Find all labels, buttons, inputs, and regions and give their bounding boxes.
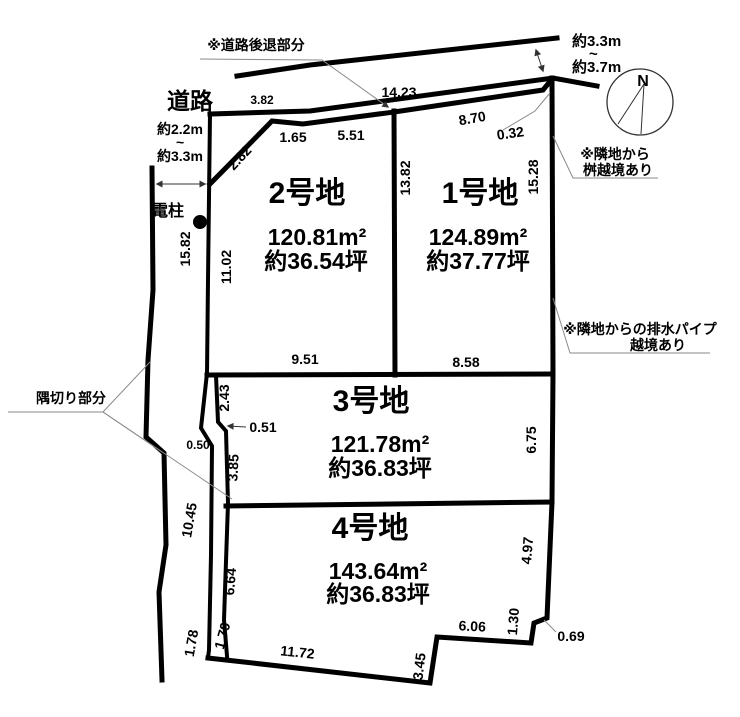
compass-north-label: N (637, 73, 649, 90)
dim-west-line-upper: 15.82 (177, 231, 193, 266)
plot2-name: 2号地 (269, 177, 346, 210)
dim-plot4-east: 4.97 (518, 536, 536, 565)
plot-1: 1号地 124.89m² 約37.77坪 (426, 177, 530, 274)
plot-layout-svg: N 電柱 ※道路後退部分 道路 約3.3m ~ 約3.7m 約2.2m ~ 約3… (0, 0, 740, 717)
drain-note-line1: ※隣地からの排水パイプ (563, 321, 718, 337)
divider-plot2-plot3 (207, 374, 553, 375)
dim-plot2-top-b: 5.51 (337, 127, 364, 143)
dim-0-51-arrow (228, 426, 246, 427)
masu-note-line1: ※隣地から (580, 146, 650, 162)
plot4-name: 4号地 (332, 512, 409, 545)
dim-plot4-east-jog: 0.69 (557, 628, 584, 644)
land-plot-diagram: N 電柱 ※道路後退部分 道路 約3.3m ~ 約3.7m 約2.2m ~ 約3… (0, 0, 740, 717)
corner-cut-leader-1 (103, 362, 150, 412)
plot3-area-m2: 121.78m² (331, 431, 430, 457)
dim-plot1-top: 8.70 (457, 108, 487, 129)
utility-pole-icon (193, 215, 207, 229)
plot1-area-m2: 124.89m² (429, 224, 528, 250)
plot2-area-tsubo: 約36.54坪 (264, 248, 368, 274)
plot4-area-tsubo: 約36.83坪 (326, 581, 430, 607)
divider-plot3-plot4 (226, 502, 552, 506)
dim-plot4-south-b: 3.45 (409, 652, 428, 681)
dim-plot1-west: 13.82 (397, 160, 413, 195)
dim-plot1-top-jog: 0.32 (496, 123, 525, 143)
dim-plot3-west-b: 3.85 (224, 454, 241, 482)
compass: N (607, 69, 673, 135)
utility-pole-label: 電柱 (152, 201, 184, 220)
plot3-plot4-west-edge (216, 375, 228, 656)
road-setback-note: ※道路後退部分 (207, 37, 305, 53)
dim-west-line-end: 1.78 (181, 628, 202, 658)
road-width-north-max: 約3.7m (572, 58, 621, 76)
divider-plot1-plot2 (394, 111, 395, 375)
plot-3: 3号地 121.78m² 約36.83坪 (328, 385, 432, 481)
dim-plot3-west-a: 2.43 (216, 384, 232, 411)
property-west-line (201, 114, 212, 658)
dim-plot3-west-jog: 0.51 (249, 419, 276, 435)
plot-4: 4号地 143.64m² 約36.83坪 (326, 512, 430, 607)
plot3-area-tsubo: 約36.83坪 (328, 455, 432, 481)
dim-0-69-leader-line (544, 620, 556, 632)
dim-plot2-west: 11.02 (218, 250, 234, 284)
road-width-west-max: 約3.3m (157, 148, 203, 164)
road-label: 道路 (167, 88, 214, 114)
masu-note-line2: 桝越境あり (583, 162, 653, 178)
dim-plot1-south: 8.58 (452, 354, 479, 370)
plot3-name: 3号地 (333, 385, 410, 418)
dim-plot4-south: 11.72 (280, 642, 316, 662)
dim-plot4-south-c: 6.06 (458, 617, 486, 634)
plot1-area-tsubo: 約37.77坪 (426, 248, 530, 274)
dim-plot4-west-b: 1.79 (211, 620, 234, 651)
dim-plot1-east: 15.28 (525, 159, 541, 194)
compass-needle-icon (618, 84, 644, 134)
dim-front-west: 3.82 (250, 93, 274, 107)
plot-2: 2号地 120.81m² 約36.54坪 (264, 177, 368, 274)
dim-front-main: 14.23 (381, 84, 416, 100)
dim-west-line-lower: 10.45 (178, 501, 200, 538)
plot2-area-m2: 120.81m² (268, 224, 367, 250)
dim-plot4-east-jog-b: 1.30 (504, 607, 522, 636)
north-road-width-arrow (536, 50, 543, 71)
dim-plot2-top-a: 1.65 (279, 129, 306, 145)
dim-plot2-south: 9.51 (291, 351, 318, 367)
corner-cut-label: 隅切り部分 (36, 390, 106, 406)
dim-plot3-east: 6.75 (523, 426, 539, 453)
dim-plot4-west-a: 6.64 (221, 567, 239, 596)
road-west-line (146, 168, 166, 680)
plot1-name: 1号地 (442, 177, 519, 210)
drain-note-line2: 越境あり (629, 337, 686, 353)
dim-road-jog: 0.50 (186, 438, 210, 452)
